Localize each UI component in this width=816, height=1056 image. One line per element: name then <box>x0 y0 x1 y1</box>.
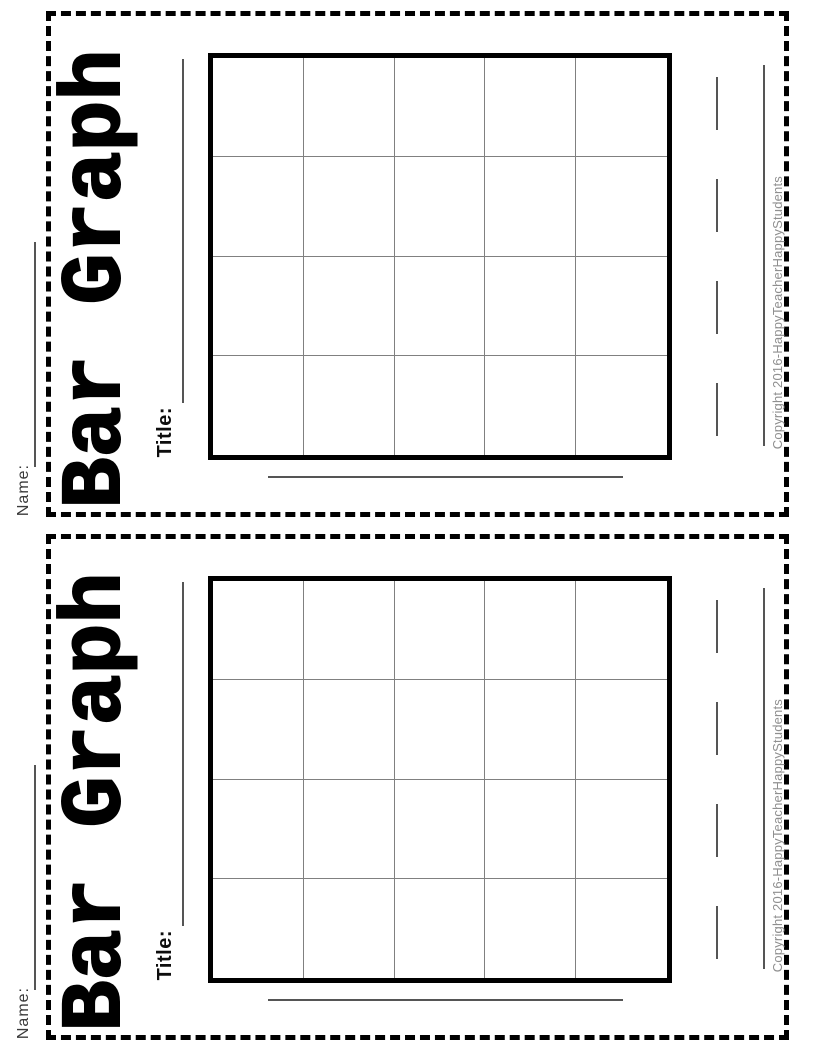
graph-title-blank-line <box>182 582 184 926</box>
grid-cell <box>485 680 576 779</box>
y-axis-label-line <box>268 476 623 478</box>
category-label-lines <box>715 576 719 983</box>
grid-cell <box>304 680 395 779</box>
grid-cell <box>576 581 667 680</box>
x-axis-label-line <box>763 588 765 969</box>
grid-cell <box>576 58 667 157</box>
grid-cell <box>304 58 395 157</box>
category-label-line <box>716 179 718 232</box>
graph-title-label: Title: <box>154 930 177 980</box>
grid-cell <box>213 58 304 157</box>
grid-cell <box>213 879 304 978</box>
category-label-lines <box>715 53 719 460</box>
bar-graph-worksheet-bottom: Name: Bar Graph Title: Copyright 2016-Ha… <box>0 523 816 1046</box>
grid-cell <box>213 257 304 356</box>
grid-cell <box>576 157 667 256</box>
grid-cell <box>395 356 486 455</box>
bar-graph-worksheet-top: Name: Bar Graph Title: Copyright 2016-Ha… <box>0 0 816 523</box>
grid-cell <box>576 257 667 356</box>
grid-cell <box>576 680 667 779</box>
grid-cell <box>304 157 395 256</box>
grid-cell <box>213 780 304 879</box>
worksheet-frame: Bar Graph Title: Copyright 2016-HappyTea… <box>46 534 789 1040</box>
name-label: Name: <box>15 464 33 516</box>
y-axis-label-line <box>268 999 623 1001</box>
grid-cell <box>576 879 667 978</box>
category-label-line <box>716 906 718 959</box>
grid-cell <box>304 879 395 978</box>
grid-cell <box>304 780 395 879</box>
grid-cell <box>395 680 486 779</box>
grid-cell <box>395 58 486 157</box>
grid-cell <box>304 257 395 356</box>
worksheet-frame: Bar Graph Title: Copyright 2016-HappyTea… <box>46 11 789 517</box>
copyright-text: Copyright 2016-HappyTeacherHappyStudents <box>770 176 785 449</box>
graph-title-blank-line <box>182 59 184 403</box>
copyright-text: Copyright 2016-HappyTeacherHappyStudents <box>770 699 785 972</box>
grid-cell <box>485 879 576 978</box>
grid-cell <box>485 780 576 879</box>
worksheet-title: Bar Graph <box>52 572 141 1031</box>
worksheet-page: Name: Bar Graph Title: Copyright 2016-Ha… <box>0 0 816 1056</box>
grid-cell <box>485 257 576 356</box>
grid-cell <box>213 680 304 779</box>
category-label-line <box>716 702 718 755</box>
name-label: Name: <box>15 987 33 1039</box>
grid-cell <box>395 879 486 978</box>
grid-cell <box>485 581 576 680</box>
grid-cell <box>304 581 395 680</box>
grid-cell <box>304 356 395 455</box>
category-label-line <box>716 804 718 857</box>
category-label-line <box>716 281 718 334</box>
graph-title-label: Title: <box>154 407 177 457</box>
name-blank-line <box>34 765 36 990</box>
grid-cell <box>213 356 304 455</box>
category-label-line <box>716 600 718 653</box>
grid-cell <box>485 157 576 256</box>
grid-cell <box>213 581 304 680</box>
category-label-line <box>716 77 718 130</box>
x-axis-label-line <box>763 65 765 446</box>
bar-graph-grid <box>208 576 672 983</box>
grid-cell <box>395 581 486 680</box>
grid-cell <box>395 780 486 879</box>
grid-cell <box>485 58 576 157</box>
worksheet-title: Bar Graph <box>52 49 141 508</box>
grid-cell <box>576 356 667 455</box>
grid-cell <box>395 257 486 356</box>
grid-cell <box>485 356 576 455</box>
grid-cell <box>395 157 486 256</box>
bar-graph-grid <box>208 53 672 460</box>
name-blank-line <box>34 242 36 467</box>
category-label-line <box>716 383 718 436</box>
grid-cell <box>576 780 667 879</box>
grid-cell <box>213 157 304 256</box>
